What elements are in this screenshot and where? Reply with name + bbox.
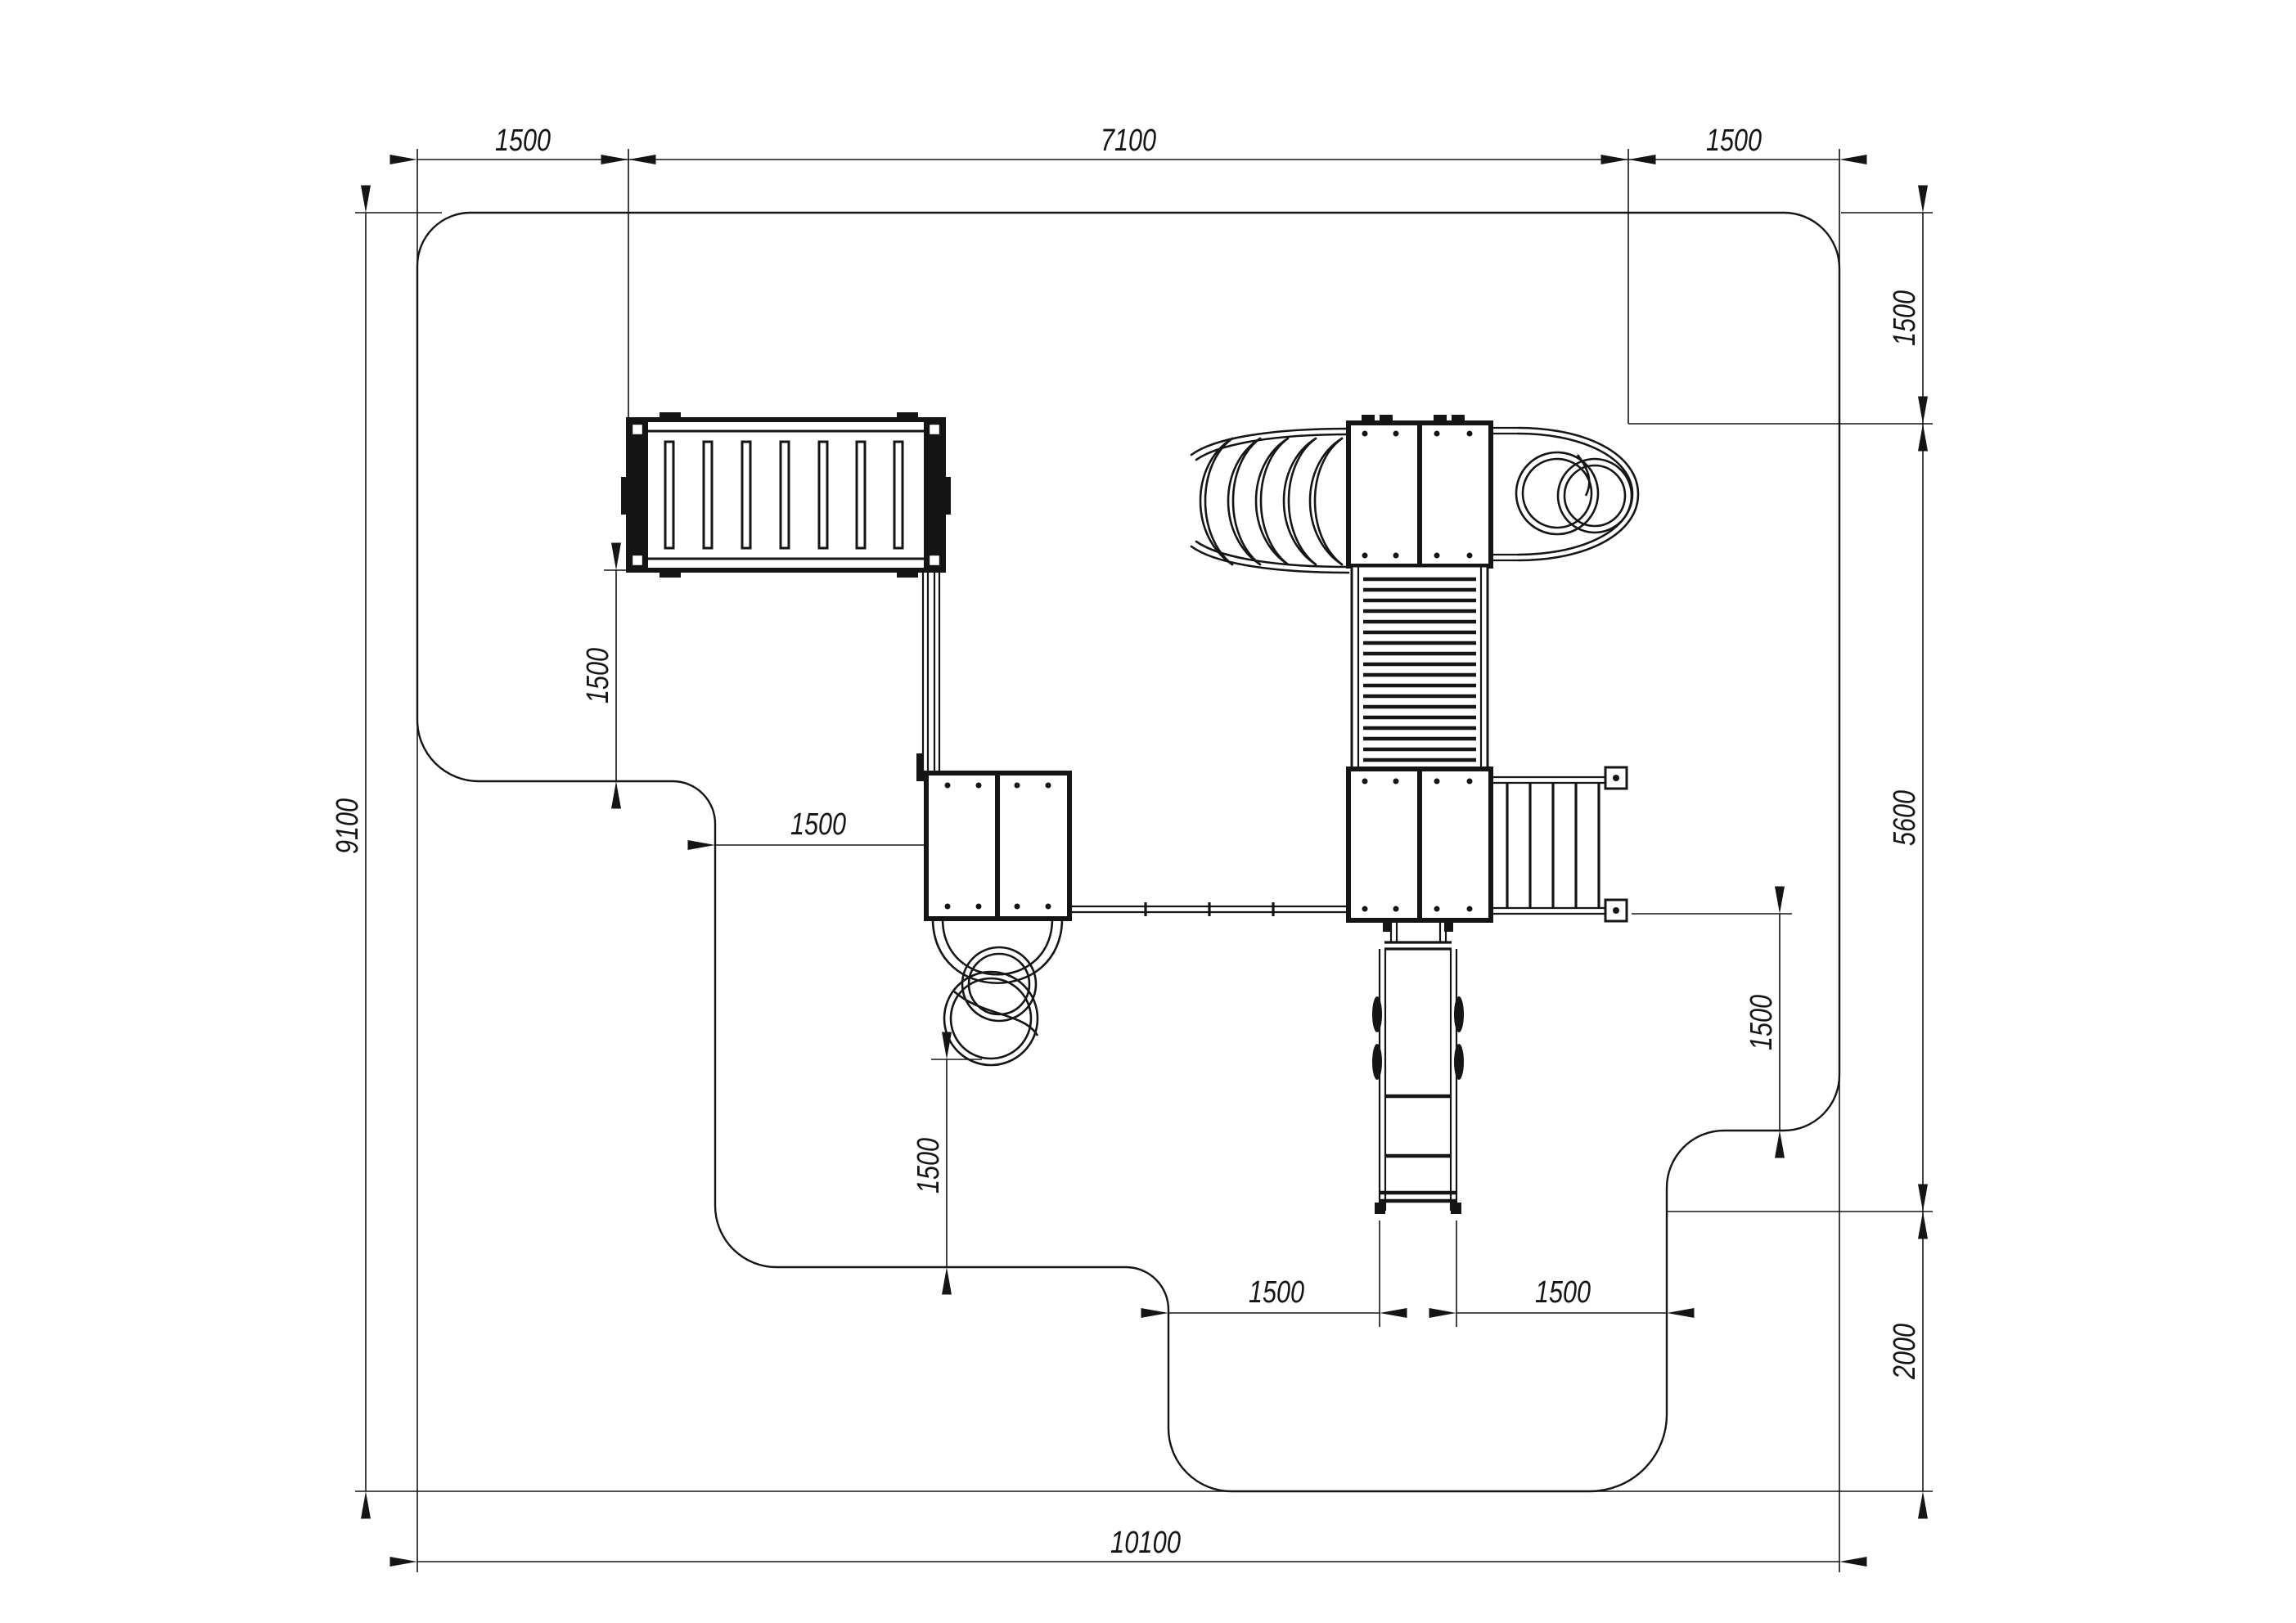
- dimension-internal: 1500 1500 1500 1500 1500 1500: [581, 570, 1780, 1313]
- extension-lines: [355, 149, 1933, 1572]
- tower-tab: [1434, 415, 1447, 424]
- screw-dot: [1467, 431, 1473, 437]
- dimension-bottom: 10100: [417, 1526, 1839, 1562]
- loop-climber: [1491, 428, 1638, 560]
- bridge-end-cap: [628, 420, 648, 570]
- climber-arc: [1289, 438, 1316, 564]
- bridge-post: [632, 424, 643, 435]
- slide-support: [1372, 996, 1382, 1032]
- screw-dot: [1362, 779, 1368, 785]
- playground-plan-drawing: 1500 7100 1500 9100 1500 5600 2000 10100…: [0, 0, 2296, 1623]
- screw-dot: [1434, 906, 1440, 912]
- connector-foot: [916, 753, 924, 781]
- climber-arc: [1315, 438, 1342, 564]
- tower-tab: [1362, 415, 1375, 424]
- screw-dot: [1434, 779, 1440, 785]
- bridge-plank: [857, 442, 865, 548]
- screw-dot: [945, 783, 951, 789]
- tower-tab: [1452, 415, 1465, 424]
- dim-label: 1500: [790, 807, 846, 842]
- bridge-plank: [894, 442, 903, 548]
- slide-post: [1444, 921, 1453, 932]
- screw-dot: [1362, 906, 1368, 912]
- bridge-plank: [819, 442, 827, 548]
- bridge-plank: [665, 442, 673, 548]
- ring: [1564, 465, 1625, 526]
- bridge-tab: [897, 569, 918, 578]
- slide-foot: [1451, 1203, 1461, 1214]
- dim-label: 7100: [1101, 124, 1156, 158]
- loop-inner: [1518, 434, 1632, 555]
- screw-dot: [1613, 775, 1619, 781]
- slide-support: [1454, 996, 1464, 1032]
- dim-label: 1500: [495, 124, 551, 158]
- bridge-tab: [660, 569, 681, 578]
- dim-label: 9100: [331, 798, 365, 854]
- dim-label: 5600: [1888, 790, 1922, 846]
- screw-dot: [1362, 431, 1368, 437]
- safety-zone-boundary: [417, 213, 1839, 1491]
- screw-dot: [1393, 431, 1399, 437]
- screw-dot: [945, 904, 951, 910]
- screw-dot: [1393, 906, 1399, 912]
- screw-dot: [1015, 783, 1020, 789]
- spiral-tube-slide: [933, 919, 1062, 1065]
- dim-label: 1500: [912, 1138, 946, 1194]
- screw-dot: [1362, 553, 1368, 559]
- screw-dot: [1613, 907, 1619, 914]
- rope-bridge: [621, 412, 951, 578]
- bridge-tab: [621, 477, 629, 515]
- screw-dot: [1434, 553, 1440, 559]
- transfer-walkway: [1069, 902, 1352, 916]
- bridge-plank: [704, 442, 712, 548]
- small-platform: [926, 773, 1069, 919]
- screw-dot: [1046, 783, 1051, 789]
- screw-dot: [1046, 904, 1051, 910]
- slide-support: [1372, 1044, 1382, 1080]
- climbing-ramp: [1352, 566, 1488, 769]
- stairway: [1491, 767, 1627, 921]
- slide-post: [1383, 921, 1392, 932]
- screw-dot: [976, 783, 982, 789]
- screw-dot: [1015, 904, 1020, 910]
- straight-slide: [1372, 920, 1464, 1214]
- bridge-plank: [742, 442, 750, 548]
- dimension-chain-right: 1500 5600 2000: [1888, 213, 1923, 1491]
- slide-foot: [1375, 1203, 1385, 1214]
- tube-ring: [951, 978, 1031, 1059]
- slide-support: [1454, 1044, 1464, 1080]
- screw-dot: [1467, 906, 1473, 912]
- screw-dot: [1393, 553, 1399, 559]
- main-tower: [1348, 415, 1491, 920]
- bridge-tab: [943, 477, 951, 515]
- bridge-connector: [916, 572, 939, 781]
- dim-label: 1500: [581, 648, 615, 704]
- bridge-post: [632, 555, 643, 566]
- tower-tab: [1380, 415, 1393, 424]
- dim-label: 1500: [1535, 1275, 1591, 1310]
- ring: [1558, 459, 1632, 533]
- dim-label: 1500: [1745, 995, 1779, 1050]
- bridge-post: [929, 555, 940, 566]
- dim-label: 1500: [1706, 124, 1762, 158]
- screw-dot: [1467, 779, 1473, 785]
- loop-outer: [1518, 428, 1638, 560]
- bridge-end-cap: [924, 420, 943, 570]
- tube-ring: [944, 972, 1038, 1065]
- screw-dot: [976, 904, 982, 910]
- bridge-tab: [897, 412, 918, 420]
- bridge-plank: [781, 442, 789, 548]
- dim-label: 1500: [1888, 290, 1922, 346]
- dim-label: 2000: [1888, 1324, 1922, 1380]
- dimension-chain-top: 1500 7100 1500: [417, 124, 1839, 160]
- dimension-left: 9100: [331, 213, 366, 1491]
- bridge-post: [929, 424, 940, 435]
- screw-dot: [1434, 431, 1440, 437]
- dim-label: 1500: [1249, 1275, 1304, 1310]
- screw-dot: [1393, 779, 1399, 785]
- dim-label: 10100: [1110, 1526, 1181, 1560]
- screw-dot: [1467, 553, 1473, 559]
- arc-climber: [1191, 429, 1348, 573]
- bridge-tab: [660, 412, 681, 420]
